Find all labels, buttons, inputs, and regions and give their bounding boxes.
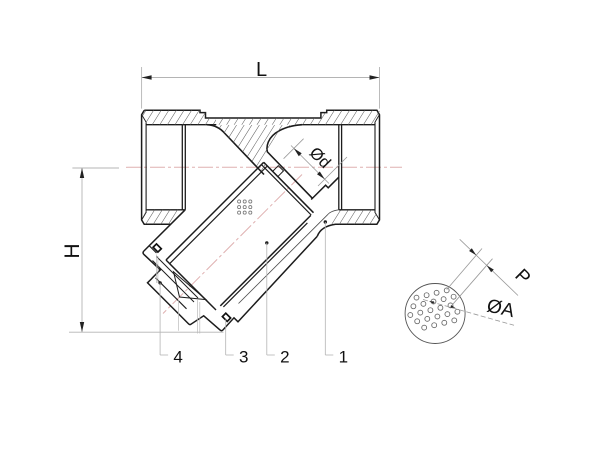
svg-text:1: 1 bbox=[339, 348, 348, 367]
svg-text:2: 2 bbox=[280, 348, 289, 367]
svg-text:L: L bbox=[256, 59, 267, 81]
svg-text:H: H bbox=[61, 243, 84, 258]
svg-text:4: 4 bbox=[173, 348, 182, 367]
svg-text:3: 3 bbox=[239, 348, 248, 367]
